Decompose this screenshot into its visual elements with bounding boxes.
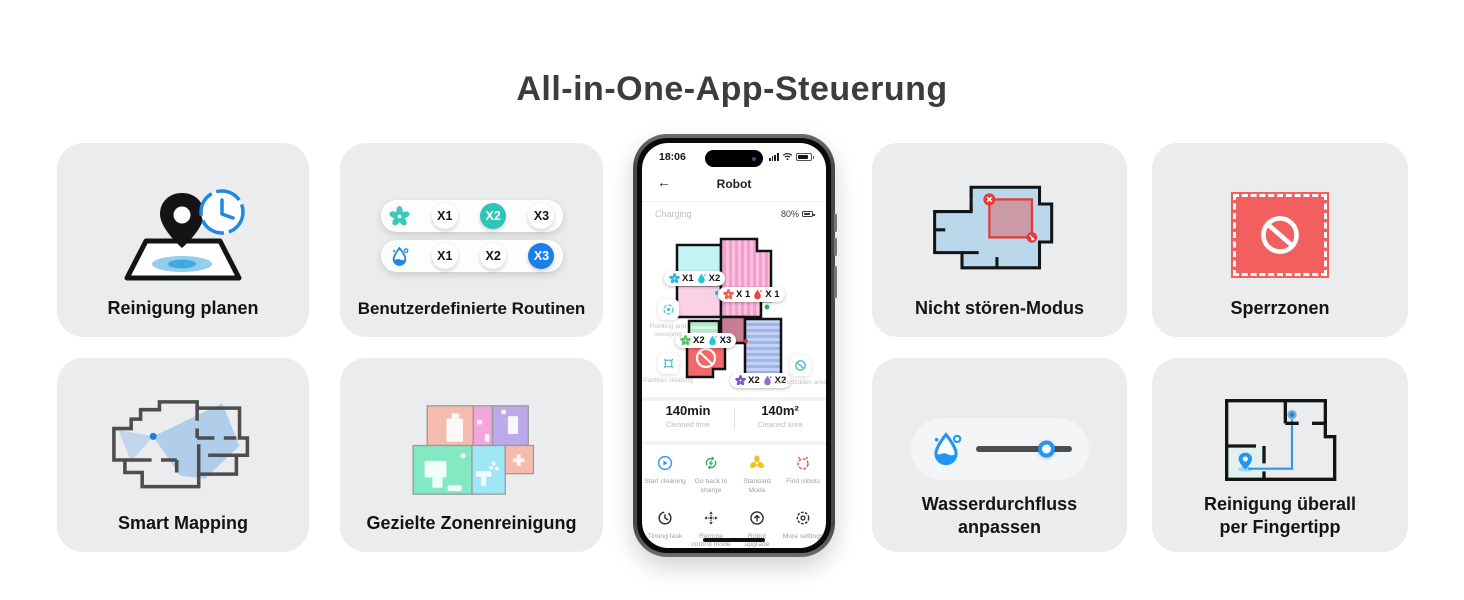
status-time: 18:06 bbox=[659, 151, 686, 163]
card-schedule-cleaning: Reinigung planen bbox=[57, 143, 309, 337]
water-count: X2 bbox=[709, 273, 721, 284]
card-caption: Sperrzonen bbox=[1152, 298, 1408, 319]
fan-power-routine-row: X1 X2 X3 bbox=[381, 200, 563, 232]
cleaned-area-stat: 140m² Cleaned area bbox=[734, 403, 826, 429]
page-title: All-in-One-App-Steuerung bbox=[0, 70, 1464, 109]
divider bbox=[642, 397, 826, 401]
action-label: Timing task bbox=[642, 533, 688, 542]
water-drop-icon bbox=[707, 335, 718, 346]
battery-percent: 80% bbox=[781, 209, 799, 219]
schedule-pin-clock-icon bbox=[98, 181, 268, 296]
prohibition-icon bbox=[1257, 212, 1303, 258]
fan-icon bbox=[389, 206, 410, 227]
card-caption: Reinigung planen bbox=[57, 298, 309, 319]
home-indicator bbox=[703, 538, 765, 542]
signal-icon bbox=[769, 153, 779, 161]
battery-small-icon bbox=[802, 211, 813, 217]
stat-caption: Cleaned area bbox=[734, 420, 826, 429]
timing-task-button[interactable]: Timing task bbox=[642, 504, 688, 548]
card-caption: Benutzerdefinierte Routinen bbox=[340, 299, 603, 319]
clock-icon bbox=[657, 510, 673, 526]
water-routine-row: X1 X2 X3 bbox=[381, 240, 563, 272]
card-caption: Smart Mapping bbox=[57, 513, 309, 534]
charging-status: Charging bbox=[655, 209, 692, 219]
wifi-icon bbox=[782, 152, 793, 161]
dpad-icon bbox=[703, 510, 719, 526]
cleaned-time-stat: 140min Cleaned time bbox=[642, 403, 734, 429]
water-count: X 1 bbox=[765, 289, 779, 300]
app-screen: 18:06 ← Robot Charging 80% bbox=[642, 143, 826, 548]
set-forbidden-area-button[interactable]: Set forbidden area bbox=[773, 355, 826, 387]
mapping-floorplan-icon bbox=[104, 394, 262, 500]
tap-floorplan-icon bbox=[1213, 394, 1347, 494]
card-water-flow: Wasserdurchfluss anpassen bbox=[872, 358, 1127, 552]
recharge-icon bbox=[703, 455, 719, 471]
more-settings-button[interactable]: More settings bbox=[780, 504, 826, 548]
card-tap-to-clean: Reinigung überall per Fingertipp bbox=[1152, 358, 1408, 552]
water-count: X3 bbox=[720, 335, 732, 346]
fan-count: X2 bbox=[748, 375, 760, 386]
play-icon bbox=[657, 455, 673, 471]
go-back-to-charge-button[interactable]: Go back to charge bbox=[688, 449, 734, 496]
pointing-and-sweeping-button[interactable]: Pointing and sweeping bbox=[642, 299, 695, 340]
fan-icon bbox=[669, 273, 680, 284]
water-flow-slider[interactable] bbox=[976, 446, 1072, 452]
target-icon bbox=[662, 303, 675, 316]
card-caption: Reinigung überall per Fingertipp bbox=[1152, 493, 1408, 538]
action-label: More settings bbox=[780, 533, 826, 542]
fan-option-x3: X3 bbox=[528, 203, 554, 229]
fan-icon bbox=[723, 289, 734, 300]
room-label: X 1 X 1 bbox=[718, 287, 785, 302]
divider bbox=[734, 407, 735, 429]
divider bbox=[642, 201, 826, 202]
feature-label: Set forbidden area bbox=[773, 379, 826, 387]
fan-count: X 1 bbox=[736, 289, 750, 300]
phone-mockup: 18:06 ← Robot Charging 80% bbox=[633, 134, 835, 557]
action-label: Find robots bbox=[780, 478, 826, 487]
app-title: Robot bbox=[642, 177, 826, 191]
water-drop-icon bbox=[762, 375, 773, 386]
card-custom-routines: X1 X2 X3 X1 X2 X3 Benutzerdefinierte Rou… bbox=[340, 143, 603, 337]
card-caption: Gezielte Zonenreinigung bbox=[340, 513, 603, 534]
action-label: Standard Mode bbox=[734, 478, 780, 496]
water-flow-control bbox=[911, 418, 1089, 480]
zone-floorplan-icon bbox=[408, 400, 536, 500]
water-option-x2: X2 bbox=[480, 243, 506, 269]
partition-cleaning-button[interactable]: Partition cleaning bbox=[642, 353, 695, 385]
card-caption: Nicht stören-Modus bbox=[872, 298, 1127, 319]
card-smart-mapping: Smart Mapping bbox=[57, 358, 309, 552]
fan-count: X1 bbox=[682, 273, 694, 284]
battery-icon bbox=[796, 153, 812, 161]
find-robots-button[interactable]: Find robots bbox=[780, 449, 826, 496]
water-option-x1: X1 bbox=[432, 243, 458, 269]
prohibition-icon bbox=[794, 359, 807, 372]
water-drop-icon bbox=[752, 289, 763, 300]
fan-icon bbox=[735, 375, 746, 386]
card-caption: Wasserdurchfluss anpassen bbox=[872, 493, 1127, 538]
stat-value: 140min bbox=[642, 403, 734, 418]
slider-knob[interactable] bbox=[1038, 441, 1055, 458]
feature-label: Partition cleaning bbox=[642, 377, 695, 385]
start-cleaning-button[interactable]: Start cleaning bbox=[642, 449, 688, 496]
room-label: X1 X2 bbox=[664, 271, 725, 286]
feature-label: Pointing and sweeping bbox=[642, 323, 695, 340]
water-drop-icon bbox=[696, 273, 707, 284]
power-button bbox=[834, 266, 837, 298]
gear-icon bbox=[795, 510, 811, 526]
divider bbox=[642, 441, 826, 445]
card-zone-cleaning: Gezielte Zonenreinigung bbox=[340, 358, 603, 552]
water-drop-icon bbox=[389, 246, 410, 267]
standard-mode-button[interactable]: Standard Mode bbox=[734, 449, 780, 496]
no-go-zone-square bbox=[1231, 192, 1329, 278]
action-label: Go back to charge bbox=[688, 478, 734, 496]
water-option-x3-selected: X3 bbox=[528, 243, 554, 269]
fan-option-x1: X1 bbox=[432, 203, 458, 229]
alarm-icon bbox=[795, 455, 811, 471]
fan-mode-icon bbox=[749, 455, 765, 471]
dynamic-island bbox=[705, 150, 763, 167]
fan-option-x2-selected: X2 bbox=[480, 203, 506, 229]
card-no-go-zones: Sperrzonen bbox=[1152, 143, 1408, 337]
volume-down-button bbox=[834, 238, 837, 256]
camera-dot bbox=[752, 157, 756, 161]
card-do-not-disturb: Nicht stören-Modus bbox=[872, 143, 1127, 337]
dnd-floorplan-icon bbox=[924, 181, 1076, 287]
upgrade-icon bbox=[749, 510, 765, 526]
frame-icon bbox=[662, 357, 675, 370]
water-drop-icon bbox=[928, 431, 964, 467]
action-label: Start cleaning bbox=[642, 478, 688, 487]
volume-up-button bbox=[834, 214, 837, 232]
cleaning-map[interactable]: X1 X2 X 1 X 1 X2 X3 bbox=[642, 227, 826, 399]
stat-caption: Cleaned time bbox=[642, 420, 734, 429]
marketing-banner: All-in-One-App-Steuerung Reinigung plane… bbox=[0, 0, 1464, 600]
stat-value: 140m² bbox=[734, 403, 826, 418]
